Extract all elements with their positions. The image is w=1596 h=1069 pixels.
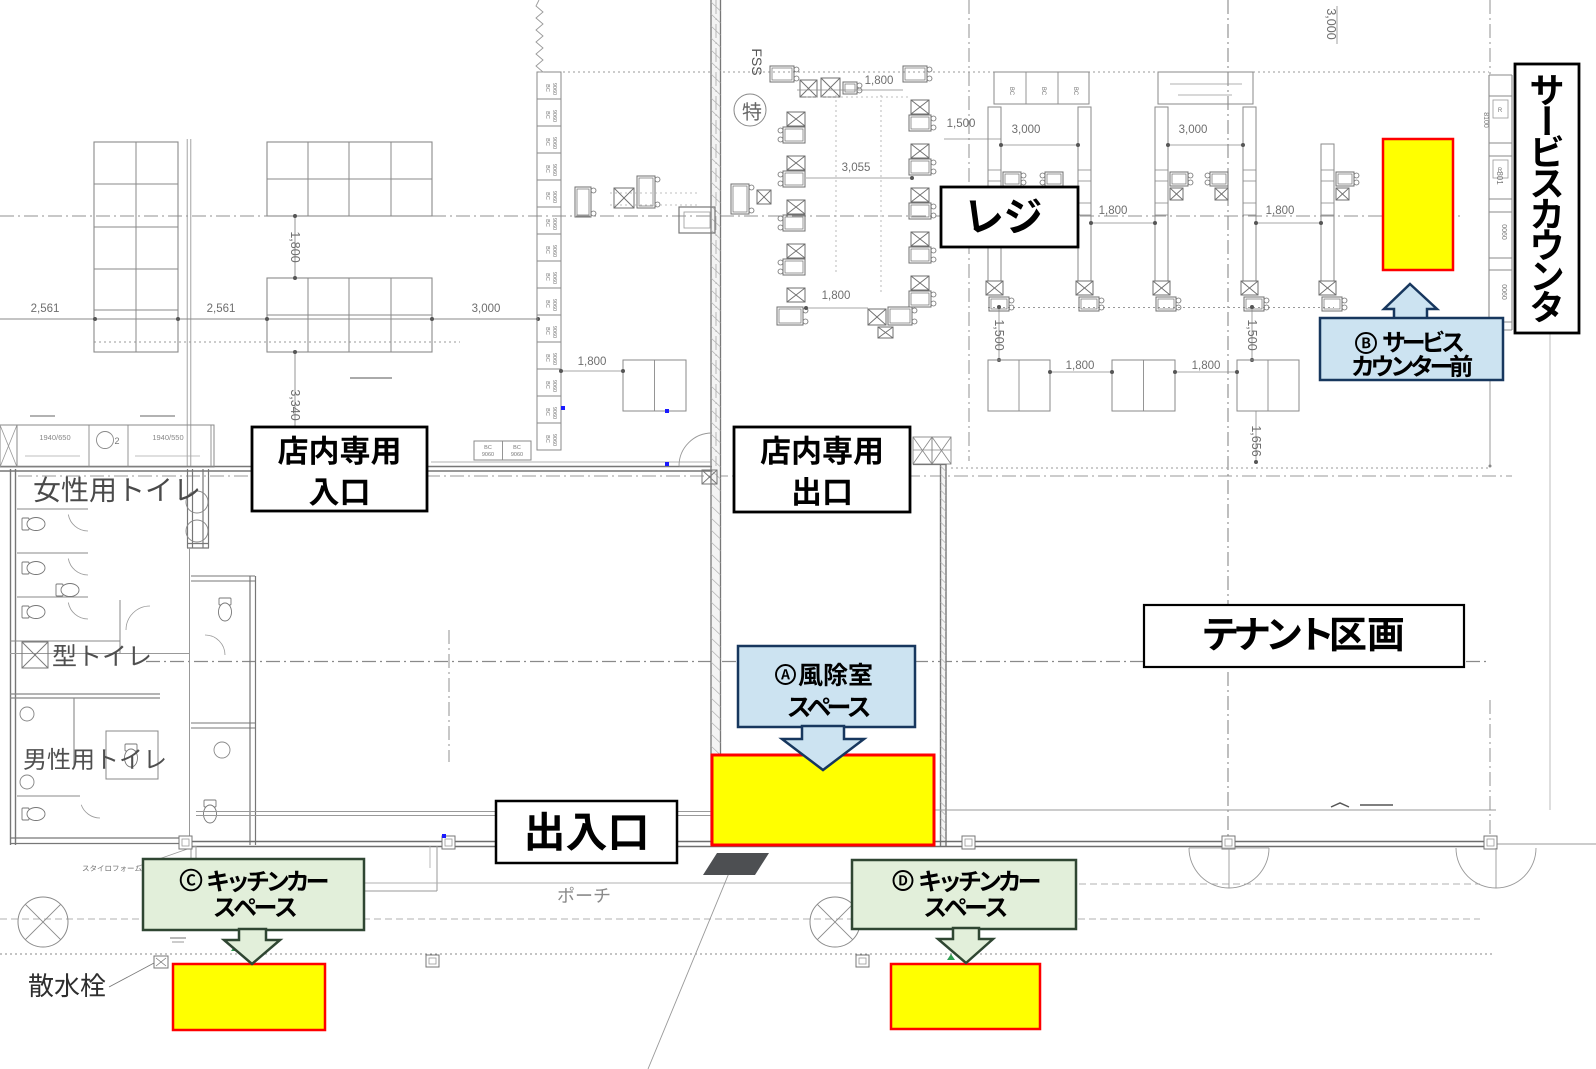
svg-text:9060: 9060: [482, 452, 494, 458]
svg-text:1,800: 1,800: [1099, 205, 1128, 217]
svg-text:9060: 9060: [551, 407, 557, 419]
svg-text:BC: BC: [544, 381, 550, 389]
svg-text:8100: 8100: [1482, 112, 1489, 128]
svg-text:BC: BC: [544, 246, 550, 254]
svg-text:2,561: 2,561: [207, 303, 236, 315]
svg-text:2: 2: [114, 436, 119, 446]
svg-text:0060: 0060: [1500, 224, 1507, 240]
svg-text:FSS: FSS: [749, 48, 765, 75]
svg-text:BC: BC: [1040, 87, 1046, 96]
svg-text:BC: BC: [544, 273, 550, 281]
svg-text:9060: 9060: [551, 191, 557, 203]
svg-text:1,500: 1,500: [992, 319, 1006, 350]
svg-text:3,055: 3,055: [842, 162, 871, 174]
svg-text:9060: 9060: [551, 434, 557, 446]
svg-text:9060: 9060: [551, 380, 557, 392]
svg-text:BC: BC: [1072, 87, 1078, 96]
svg-text:BC: BC: [544, 300, 550, 308]
svg-text:9060: 9060: [551, 164, 557, 176]
svg-text:BC: BC: [544, 408, 550, 416]
svg-text:9060: 9060: [551, 299, 557, 311]
svg-text:3,000: 3,000: [1012, 124, 1041, 136]
svg-text:1,800: 1,800: [1266, 205, 1295, 217]
svg-text:BC: BC: [544, 138, 550, 146]
svg-text:BC: BC: [544, 111, 550, 119]
svg-text:9060: 9060: [551, 353, 557, 365]
svg-text:BC: BC: [544, 84, 550, 92]
svg-text:801: 801: [1495, 171, 1504, 185]
svg-text:1,800: 1,800: [865, 75, 894, 87]
svg-text:3,000: 3,000: [472, 303, 501, 315]
svg-text:1,800: 1,800: [822, 290, 851, 302]
svg-text:1940/650: 1940/650: [39, 433, 70, 442]
svg-text:R: R: [1498, 108, 1503, 114]
svg-text:3,340: 3,340: [288, 389, 302, 420]
svg-text:1,800: 1,800: [288, 231, 302, 262]
svg-text:1,656: 1,656: [1249, 425, 1263, 456]
svg-text:9060: 9060: [511, 452, 523, 458]
svg-text:1,500: 1,500: [1245, 319, 1259, 350]
svg-text:BC: BC: [544, 354, 550, 362]
svg-text:BC: BC: [544, 165, 550, 173]
svg-text:1,800: 1,800: [1192, 360, 1221, 372]
svg-text:0060: 0060: [1500, 284, 1507, 300]
svg-text:BC: BC: [544, 435, 550, 443]
svg-text:2,561: 2,561: [31, 303, 60, 315]
svg-text:9060: 9060: [551, 83, 557, 95]
svg-text:1940/550: 1940/550: [152, 433, 183, 442]
svg-text:BC: BC: [544, 327, 550, 335]
svg-text:9060: 9060: [551, 110, 557, 122]
svg-text:9060: 9060: [551, 137, 557, 149]
svg-text:9060: 9060: [551, 272, 557, 284]
svg-text:3,000: 3,000: [1179, 124, 1208, 136]
svg-text:9060: 9060: [551, 245, 557, 257]
svg-text:BC: BC: [1008, 87, 1014, 96]
svg-text:3,000: 3,000: [1324, 8, 1338, 39]
svg-text:1,500: 1,500: [947, 118, 976, 130]
svg-text:9060: 9060: [551, 326, 557, 338]
svg-text:1,800: 1,800: [1066, 360, 1095, 372]
svg-text:BC: BC: [484, 445, 492, 451]
svg-text:1,800: 1,800: [578, 356, 607, 368]
svg-text:BC: BC: [513, 445, 521, 451]
svg-text:BC: BC: [544, 192, 550, 200]
svg-text:BC: BC: [544, 219, 550, 227]
svg-text:9060: 9060: [551, 218, 557, 230]
